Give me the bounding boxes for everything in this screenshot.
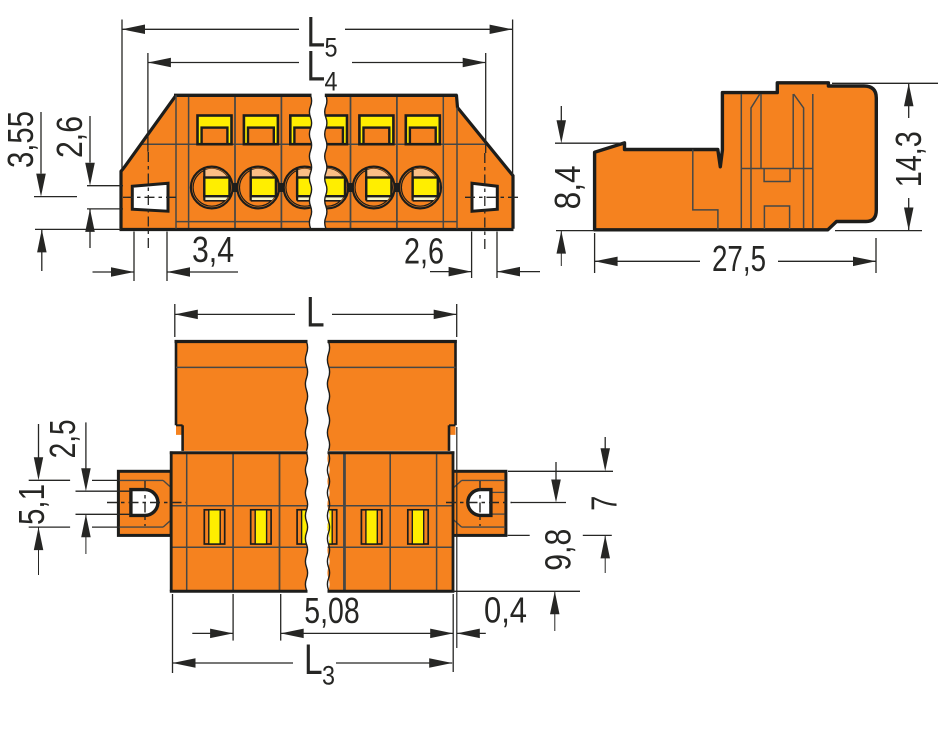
svg-text:2,6: 2,6 xyxy=(404,231,444,272)
svg-text:2,5: 2,5 xyxy=(42,419,83,458)
svg-text:9,8: 9,8 xyxy=(538,529,579,571)
svg-text:L: L xyxy=(307,43,326,91)
svg-text:3: 3 xyxy=(322,661,335,691)
svg-text:7: 7 xyxy=(583,496,624,511)
svg-text:4: 4 xyxy=(325,67,338,97)
svg-text:3,55: 3,55 xyxy=(0,111,41,168)
svg-text:5: 5 xyxy=(325,33,338,63)
svg-text:5,08: 5,08 xyxy=(304,590,359,631)
svg-text:2,6: 2,6 xyxy=(49,116,90,158)
svg-text:L: L xyxy=(306,289,325,337)
svg-text:5,1: 5,1 xyxy=(11,484,52,525)
svg-text:14,3: 14,3 xyxy=(888,131,929,187)
svg-text:27,5: 27,5 xyxy=(712,238,766,279)
svg-text:0,4: 0,4 xyxy=(484,590,527,631)
svg-text:L: L xyxy=(304,636,323,684)
svg-text:8,4: 8,4 xyxy=(547,165,588,209)
svg-text:3,4: 3,4 xyxy=(192,229,234,270)
